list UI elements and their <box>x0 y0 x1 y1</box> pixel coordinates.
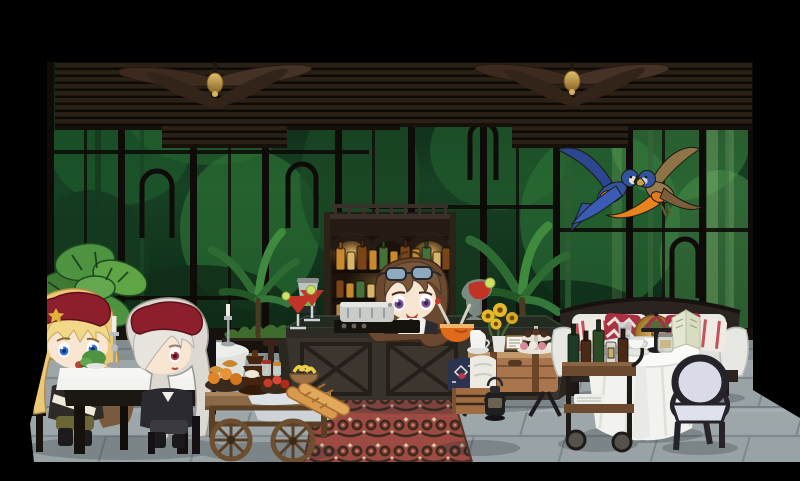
glass-jar <box>658 333 673 352</box>
cart-wheel-right <box>273 421 313 461</box>
cart-wheel-left <box>212 421 250 459</box>
game-scene <box>0 0 800 481</box>
menu-book[interactable] <box>672 310 700 349</box>
